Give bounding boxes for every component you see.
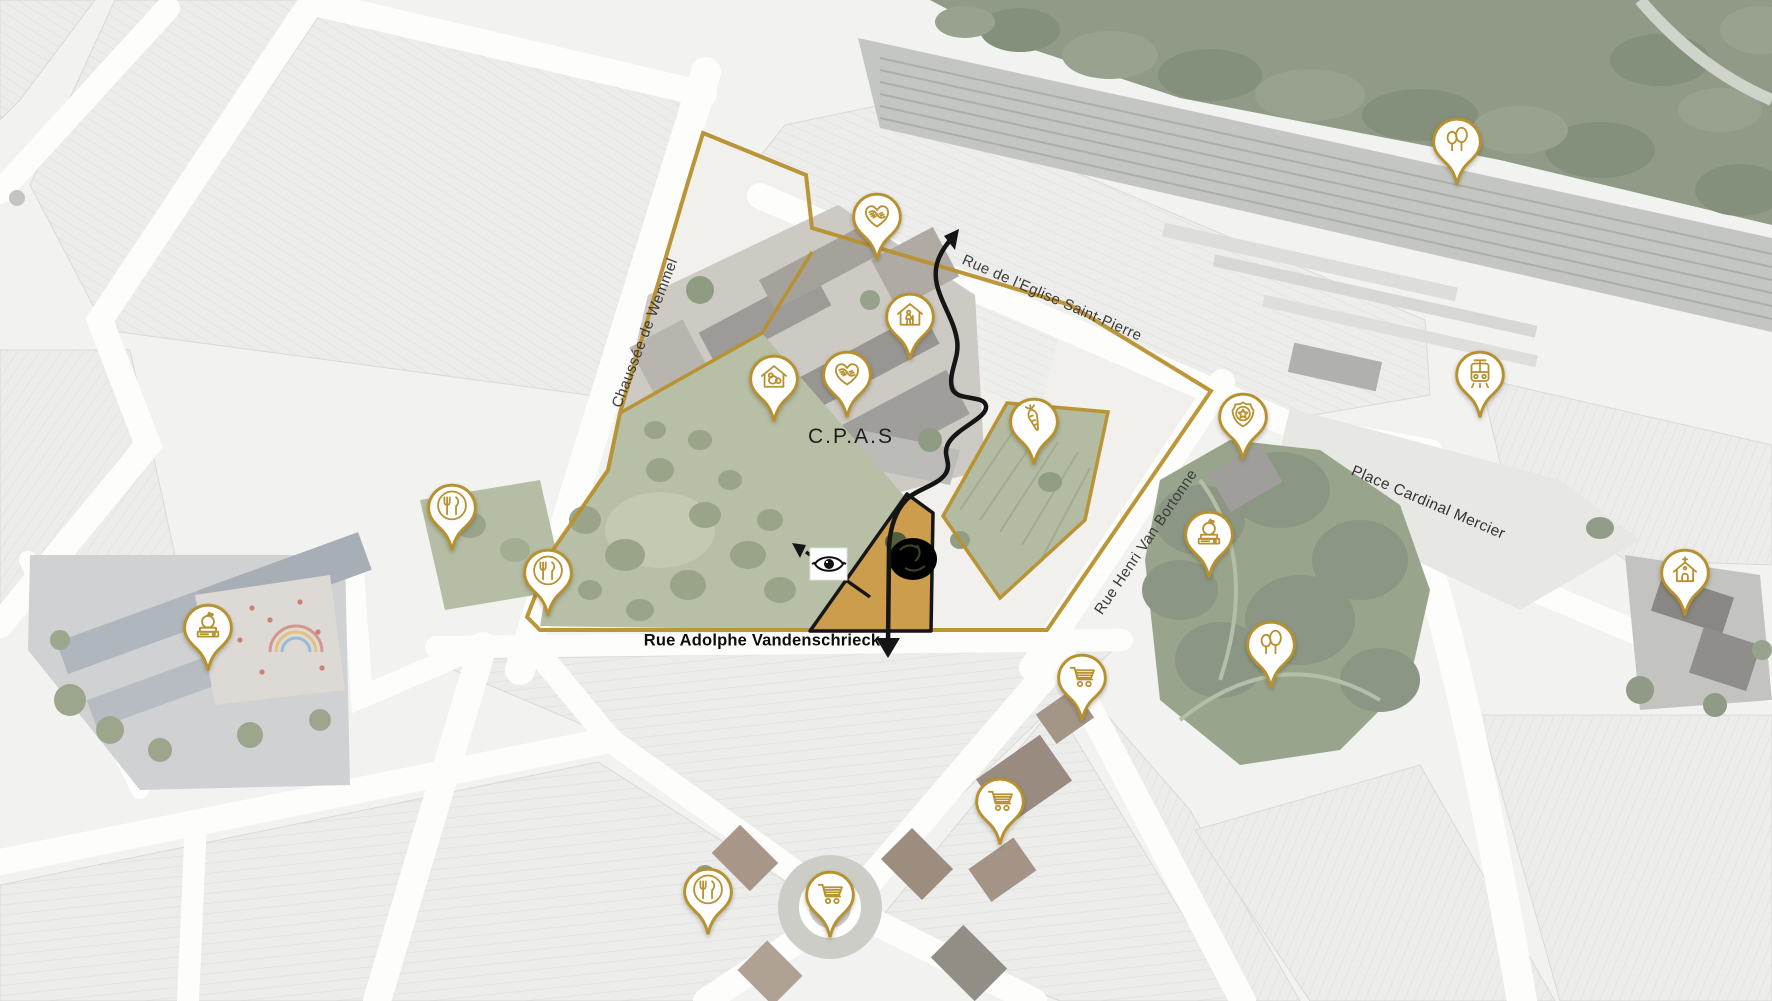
street-label-rue-adolphe-vandenschrieck: Rue Adolphe Vandenschrieck	[644, 632, 881, 651]
white-wash-overlay	[0, 0, 1772, 1001]
cpas-site-label: C.P.A.S	[808, 425, 894, 449]
site-analysis-map: Chaussée de Wemmel Rue de l'Eglise Saint…	[0, 0, 1772, 1001]
basemap-svg	[0, 0, 1772, 1001]
eye-icon	[810, 548, 847, 580]
